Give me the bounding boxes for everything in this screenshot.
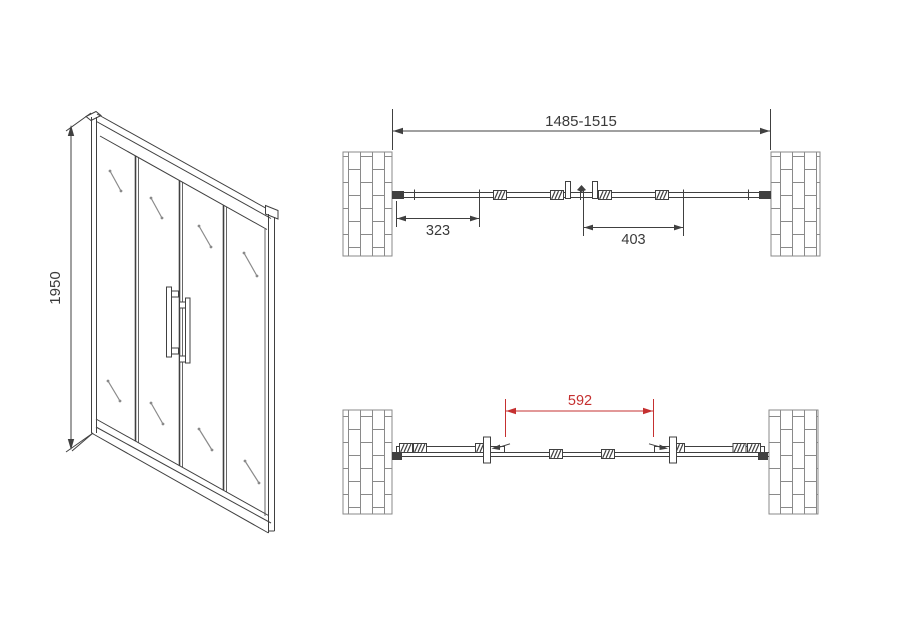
- right-handle-post-top: [180, 302, 186, 308]
- left-open-wall-bracket: [392, 452, 402, 460]
- left-door-dimension: 323: [397, 200, 480, 239]
- overall-width-label: 1485-1515: [545, 113, 617, 130]
- front-view: 1950: [47, 112, 278, 534]
- right-wall-open: [769, 410, 818, 514]
- opening-width-label: 592: [568, 393, 592, 409]
- height-dimension-label: 1950: [47, 271, 64, 304]
- overall-width-dimension: 1485-1515: [393, 109, 771, 150]
- right-handle-tab: [593, 182, 598, 199]
- right-handle-post-bottom: [180, 356, 186, 362]
- opening-dimension: 592: [506, 393, 654, 437]
- frame-top-left-cap: [86, 112, 101, 121]
- left-wall: [343, 152, 392, 256]
- left-door-label: 323: [426, 223, 450, 239]
- plan-view-open: 592: [343, 393, 818, 514]
- track-closed: [392, 182, 771, 201]
- right-door-stack: [649, 437, 768, 463]
- slide-direction-arrow-right: [660, 445, 669, 451]
- slide-direction-arrow-left: [492, 445, 501, 451]
- right-handle-bar: [186, 298, 191, 363]
- right-wall-bracket: [759, 191, 771, 199]
- left-open-handle-tab: [484, 437, 491, 463]
- left-handle-post-top: [172, 291, 179, 297]
- left-handle-bar: [167, 287, 172, 357]
- panel-dividers: [136, 156, 227, 492]
- left-door-stack: [392, 437, 510, 463]
- door-frame: [72, 112, 278, 534]
- technical-drawing-canvas: 1950: [0, 0, 900, 636]
- right-open-handle-tab: [670, 437, 677, 463]
- left-handle-post-bottom: [172, 348, 179, 354]
- center-marker: [577, 185, 586, 192]
- right-wall: [771, 152, 820, 256]
- left-wall-open: [343, 410, 392, 514]
- height-dimension: 1950: [47, 113, 93, 452]
- left-handle-tab: [566, 182, 571, 199]
- track-open: [392, 450, 769, 459]
- left-wall-bracket: [392, 191, 404, 199]
- glass-reflection-marks: [107, 170, 261, 485]
- dimension-arrow-up: [68, 125, 74, 136]
- door-handles: [167, 287, 191, 363]
- drawing-stage: 1950: [0, 0, 900, 636]
- right-door-label: 403: [621, 232, 645, 248]
- right-open-wall-bracket: [758, 452, 768, 460]
- plan-view-closed: 1485-1515 323 403: [343, 109, 820, 256]
